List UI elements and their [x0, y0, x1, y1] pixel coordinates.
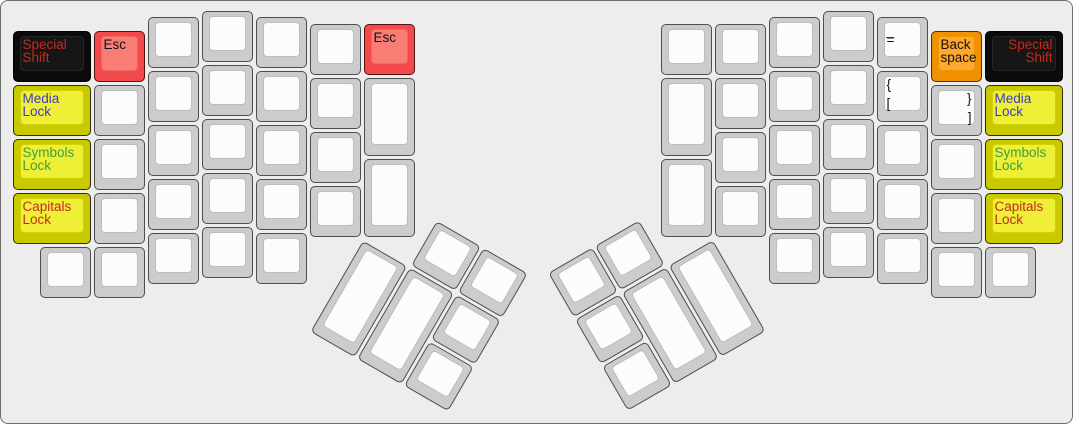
keyboard-layout-canvas: Special ShiftMedia LockSymbols LockCapit… [0, 0, 1073, 424]
keycap-top-surface [556, 256, 606, 305]
keycap-top-surface [583, 302, 633, 351]
keycap-top-surface [610, 349, 660, 398]
keycap-top-surface [603, 229, 653, 278]
